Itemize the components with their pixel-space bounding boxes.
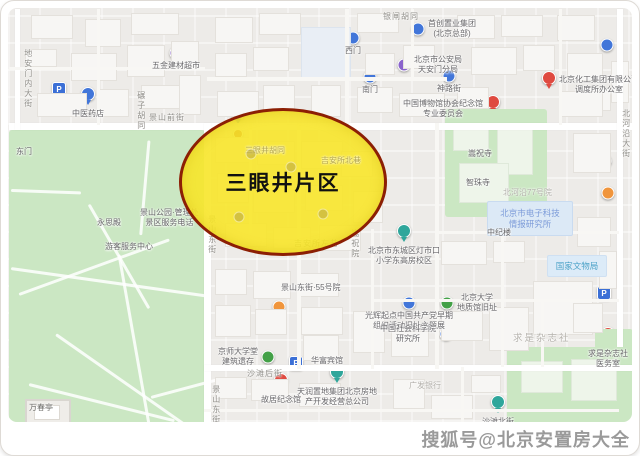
building: [573, 303, 603, 333]
minor-road: [204, 409, 619, 412]
poi-label: 中国社会科学院研究所: [380, 324, 436, 344]
park-area: [9, 130, 205, 422]
watermark: 搜狐号@北京安置房大全: [421, 426, 630, 452]
major-road: [617, 9, 623, 347]
poi-label: 神路街: [437, 84, 461, 94]
building: [259, 13, 301, 35]
map-canvas[interactable]: 地安门内大街碾子胡同景山前街银闸胡同景山东街景山东街北河沿大街沙滩后街吉安所左巷…: [8, 8, 632, 422]
building: [501, 15, 543, 37]
building: [471, 47, 517, 75]
building: [301, 307, 343, 335]
poi-label: 南门: [362, 85, 378, 95]
poi-label: 中纪楼: [487, 228, 511, 238]
poi-label: 东门: [16, 147, 32, 157]
street-label: 万春亭: [29, 404, 53, 413]
map-screenshot-card: 地安门内大街碾子胡同景山前街银闸胡同景山东街景山东街北河沿大街沙滩后街吉安所左巷…: [0, 0, 640, 456]
building: [85, 19, 121, 47]
street-label: 沙滩后街: [247, 370, 283, 379]
poi-label: 中国博物馆协会纪念馆专业委员会: [403, 99, 483, 119]
watermark-text: 搜狐号@北京安置房大全: [421, 430, 630, 450]
poi-label: 首创置业集团(北京总部): [428, 19, 476, 39]
building: [215, 53, 247, 77]
map-pin[interactable]: [491, 395, 505, 409]
building: [441, 241, 487, 265]
poi-label: 智珠寺: [466, 178, 490, 188]
area-label-box: 国家文物局: [547, 255, 607, 277]
minor-road: [345, 9, 349, 125]
street-label: 景山前街: [149, 114, 185, 123]
poi-label: 北京大学地质馆旧址: [457, 293, 497, 313]
building: [215, 305, 251, 337]
building: [523, 45, 555, 71]
building: [215, 17, 253, 43]
map-pin-tail: [546, 84, 552, 89]
street-label: 吉安所北巷: [321, 157, 361, 166]
street-label: 碾子胡同: [136, 91, 145, 131]
street-label: 银闸胡同: [383, 13, 419, 22]
street-label: 求是杂志社: [513, 334, 571, 344]
building: [365, 53, 395, 75]
poi-label: 景山东街·55号院: [281, 283, 341, 293]
minor-road: [461, 367, 464, 422]
area-label-line: 北京市电子科技: [500, 208, 560, 219]
map-pin[interactable]: [542, 71, 556, 85]
faded-poi-icon: [246, 149, 257, 160]
poi-label: 永思殿: [97, 218, 121, 228]
area-label-line: 情报研究所: [509, 219, 552, 230]
building: [179, 75, 201, 115]
building: [215, 269, 247, 295]
poi-label: 故居纪念馆: [261, 395, 301, 405]
poi-label: 中医药店: [72, 109, 104, 119]
minor-road: [559, 9, 562, 125]
highlight-area-title: 三眼井片区: [179, 167, 387, 197]
poi-label: 沙滩北街社区服务站: [478, 417, 518, 422]
poi-label: 西门: [345, 46, 361, 56]
poi-label: 五金建材超市: [152, 61, 200, 71]
poi-label: 嵩祝寺: [468, 149, 492, 159]
poi-label: 北京市公安局天安门分局: [414, 55, 462, 75]
building: [255, 309, 287, 335]
government-compound: [301, 27, 351, 79]
poi-label: 北京市东城区灯市口小学东高房校区: [368, 246, 440, 266]
map-pin-tail: [401, 237, 407, 242]
poi-icon[interactable]: [262, 351, 275, 364]
building: [471, 375, 501, 393]
building: [31, 15, 73, 39]
building: [431, 395, 473, 419]
building: [253, 47, 289, 71]
poi-label: 求是杂志社医务室: [588, 349, 628, 369]
building: [557, 15, 595, 41]
building: [141, 85, 183, 109]
poi-label: 京师大学堂建筑遗存: [218, 347, 258, 367]
area-label-line: 国家文物局: [556, 261, 599, 272]
poi-label: 天润置地集团北京房地产开发经营总公司: [297, 387, 377, 407]
street-label: 北河沿大街: [621, 109, 630, 159]
street-label: 北河沿77号院: [503, 189, 552, 198]
poi-icon[interactable]: [601, 39, 614, 52]
faded-poi-icon: [318, 209, 329, 220]
poi-label: 游客服务中心: [105, 242, 153, 252]
poi-label: 华富宾馆: [311, 356, 343, 366]
faded-poi-icon: [234, 212, 245, 223]
poi-icon[interactable]: [602, 187, 615, 200]
minor-road: [501, 233, 504, 367]
street-label: 广发银行: [409, 382, 441, 391]
map-pin[interactable]: [397, 224, 411, 238]
poi-label: 北京化工集团有限公司调度所办公室: [559, 75, 632, 95]
street-label: 地安门内大街: [23, 49, 32, 109]
street-label: 景山东街: [211, 385, 220, 422]
building: [493, 241, 525, 263]
building: [131, 13, 179, 35]
building: [573, 133, 611, 173]
